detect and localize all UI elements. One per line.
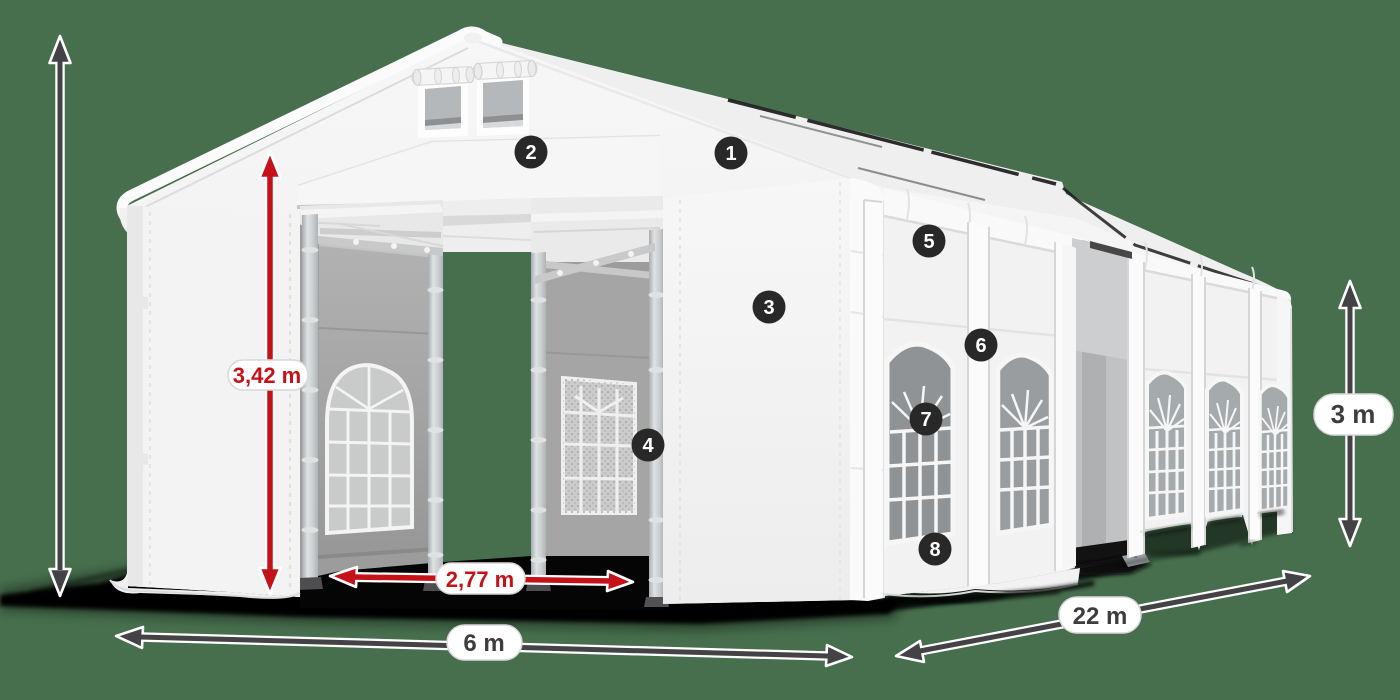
svg-text:3,42 m: 3,42 m bbox=[233, 363, 302, 388]
svg-text:5: 5 bbox=[923, 231, 934, 253]
svg-text:3 m: 3 m bbox=[1331, 399, 1376, 429]
svg-text:2: 2 bbox=[525, 142, 536, 164]
svg-text:1: 1 bbox=[725, 143, 736, 165]
svg-text:22 m: 22 m bbox=[1073, 603, 1128, 630]
svg-text:8: 8 bbox=[929, 539, 940, 561]
svg-text:7: 7 bbox=[920, 409, 931, 431]
svg-text:6 m: 6 m bbox=[463, 630, 504, 657]
svg-text:4: 4 bbox=[642, 435, 654, 457]
svg-text:2,77 m: 2,77 m bbox=[446, 567, 515, 592]
svg-text:6: 6 bbox=[975, 335, 986, 357]
svg-text:3: 3 bbox=[763, 297, 774, 319]
